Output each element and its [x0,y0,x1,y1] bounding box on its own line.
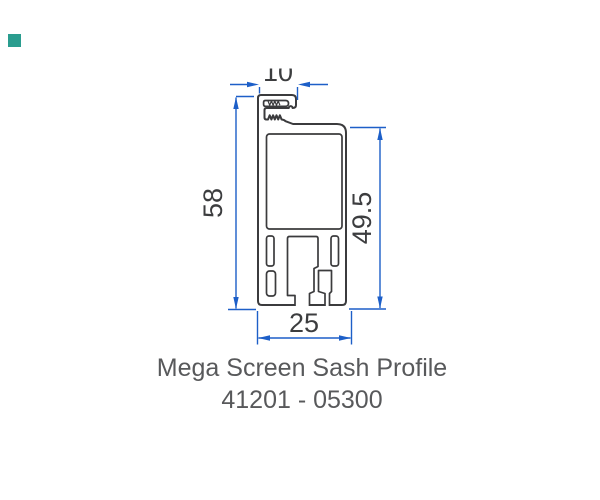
dimension-left-height: 58 [198,97,256,310]
dimension-right-height: 49.5 [347,128,386,310]
label-clip-band [256,50,300,69]
catalog-page: 10 58 49.5 25 [0,0,600,500]
dimension-bottom-width-label: 25 [289,308,319,338]
profile-title: Mega Screen Sash Profile [157,354,447,382]
slot-right-upper [331,236,339,266]
slot-left-upper [267,236,275,266]
dimension-left-height-label: 58 [198,188,228,218]
profile-code: 41201 - 05300 [221,386,382,414]
dimension-top-width: 10 [230,50,328,100]
dimension-right-height-label: 49.5 [347,192,377,245]
dimension-bottom-width: 25 [258,308,352,345]
main-chamber [267,134,343,229]
profile-technical-drawing: 10 58 49.5 25 [0,0,600,500]
slot-left-lower [267,271,276,296]
